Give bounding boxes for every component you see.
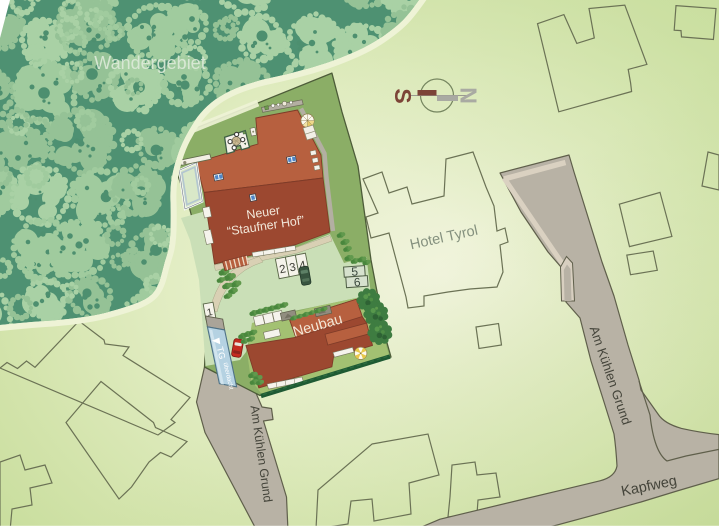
svg-text:6: 6 (353, 275, 361, 289)
svg-text:S: S (390, 88, 416, 103)
svg-text:Wandergebiet: Wandergebiet (94, 53, 205, 73)
svg-text:N: N (456, 87, 482, 104)
